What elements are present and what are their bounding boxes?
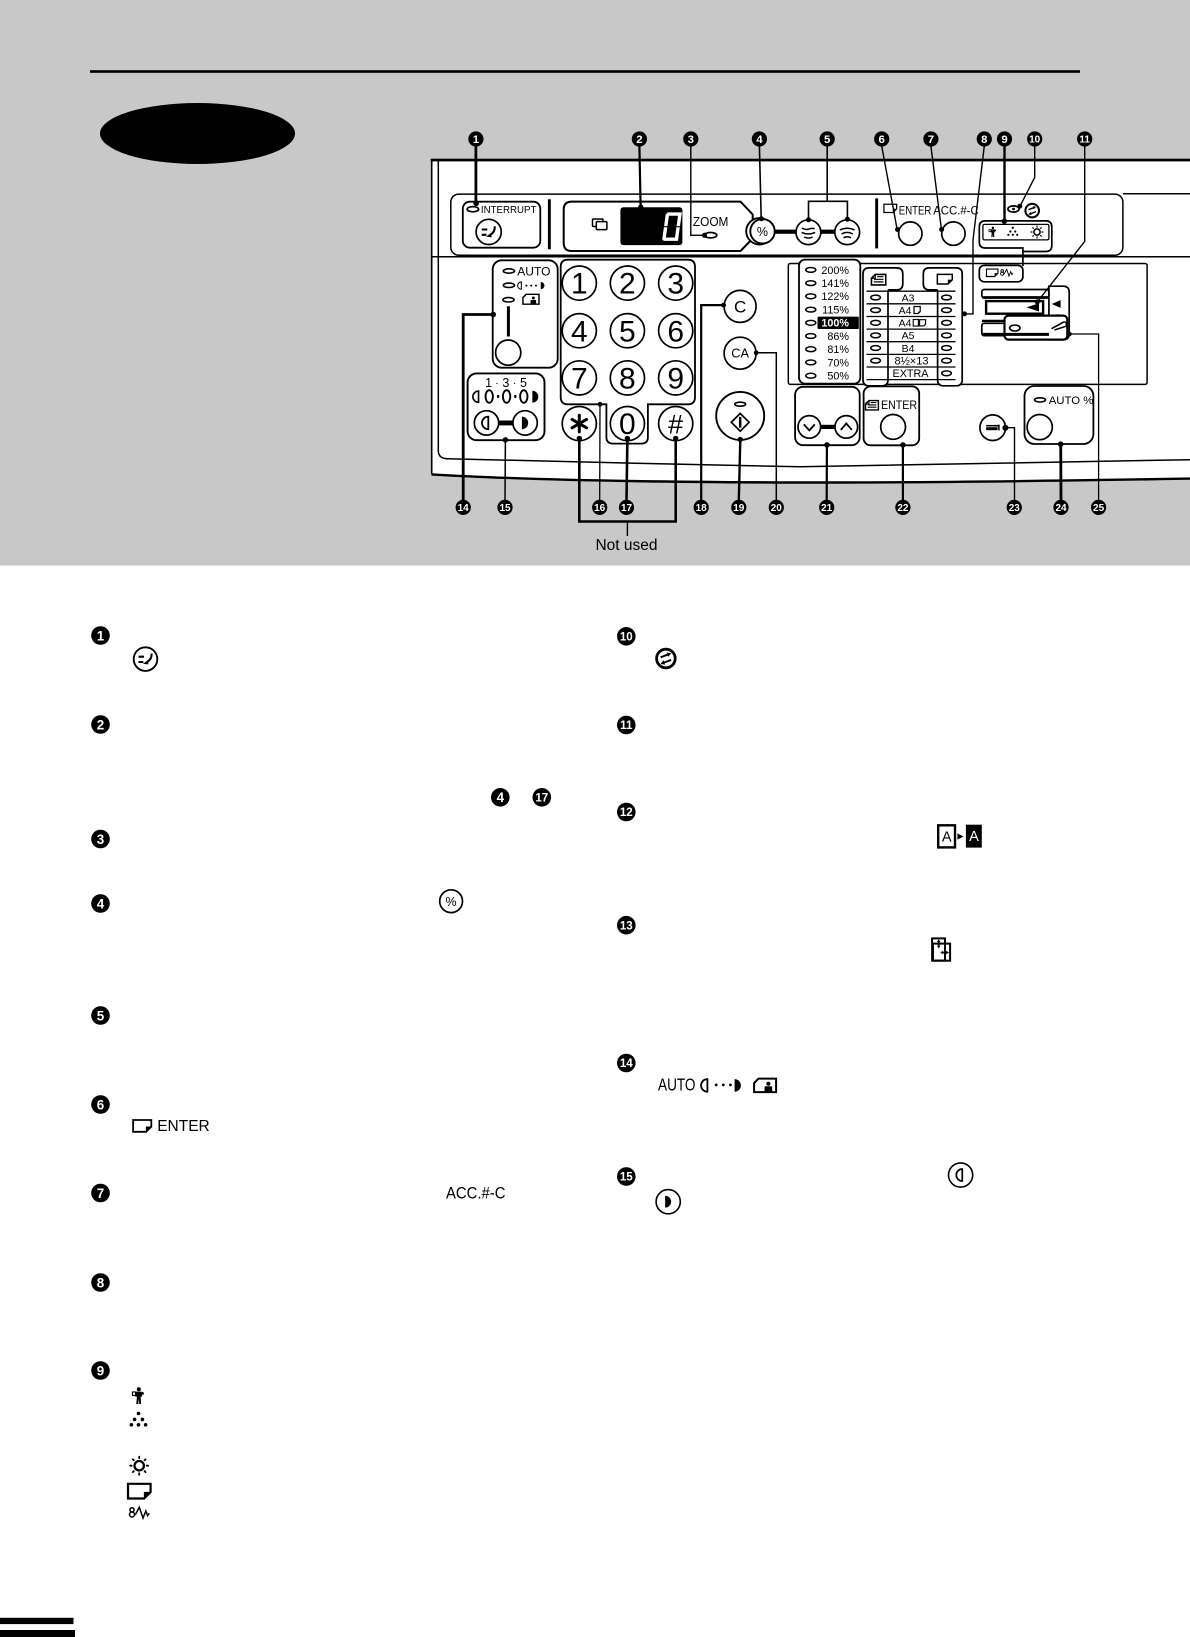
svg-text:200%: 200%	[821, 265, 849, 277]
svg-text:3: 3	[502, 376, 509, 390]
svg-text:A: A	[969, 829, 979, 845]
svg-text:%: %	[445, 895, 456, 909]
svg-text:1: 1	[97, 628, 105, 643]
svg-text:ENTER: ENTER	[899, 204, 932, 217]
svg-text:4: 4	[756, 134, 763, 146]
svg-text:5: 5	[520, 376, 527, 390]
svg-text:B4: B4	[902, 343, 915, 355]
svg-text:15: 15	[499, 503, 511, 514]
svg-text:A4: A4	[899, 305, 912, 317]
svg-text:9: 9	[1001, 134, 1007, 146]
svg-text:20: 20	[771, 503, 783, 514]
svg-text:1: 1	[485, 376, 492, 390]
svg-text:ENTER: ENTER	[881, 398, 917, 412]
svg-text:50%: 50%	[827, 371, 849, 383]
svg-text:AUTO: AUTO	[517, 264, 550, 278]
svg-text:7: 7	[97, 1186, 104, 1201]
svg-text:11: 11	[1079, 135, 1090, 146]
svg-text:25: 25	[1093, 503, 1105, 514]
svg-text:8½×13: 8½×13	[895, 356, 929, 368]
svg-text:5: 5	[97, 1008, 105, 1023]
svg-text:7: 7	[928, 134, 934, 146]
svg-text:15: 15	[620, 1171, 633, 1184]
svg-text:14: 14	[458, 503, 470, 514]
svg-text:10: 10	[620, 631, 633, 644]
svg-text:11: 11	[620, 719, 633, 732]
svg-text:3: 3	[667, 268, 684, 301]
svg-text:AUTO %: AUTO %	[1049, 395, 1094, 407]
svg-text:2: 2	[636, 134, 642, 146]
svg-text:17: 17	[535, 792, 548, 805]
svg-text:5: 5	[824, 134, 831, 146]
svg-text:122%: 122%	[821, 291, 849, 303]
svg-text:12: 12	[620, 806, 633, 819]
svg-text:115%: 115%	[822, 305, 849, 317]
svg-text:8: 8	[981, 134, 987, 146]
svg-text:18: 18	[696, 503, 708, 514]
svg-text:17: 17	[621, 503, 633, 514]
svg-text:81%: 81%	[827, 344, 849, 356]
svg-text:2: 2	[97, 717, 104, 732]
svg-text:·: ·	[495, 377, 499, 389]
svg-text:A3: A3	[902, 292, 915, 304]
svg-text:3: 3	[688, 134, 694, 146]
svg-text:8: 8	[619, 363, 636, 396]
svg-text:8: 8	[97, 1275, 105, 1290]
svg-text:13: 13	[620, 919, 633, 932]
svg-text:5: 5	[619, 315, 636, 348]
svg-text:A: A	[942, 830, 952, 846]
svg-text:6: 6	[97, 1097, 104, 1112]
svg-text:141%: 141%	[821, 278, 849, 290]
svg-text:A4: A4	[899, 318, 912, 330]
svg-text:INTERRUPT: INTERRUPT	[481, 205, 537, 216]
svg-text:%: %	[757, 225, 768, 239]
svg-text:86%: 86%	[827, 331, 849, 343]
svg-text:CA: CA	[731, 346, 749, 361]
svg-text:16: 16	[594, 503, 606, 514]
svg-text:4: 4	[97, 896, 105, 911]
svg-text:2: 2	[619, 268, 636, 301]
svg-text:70%: 70%	[827, 357, 849, 369]
svg-text:1: 1	[571, 268, 588, 301]
svg-text:Not used: Not used	[595, 537, 657, 554]
svg-text:6: 6	[667, 315, 684, 348]
svg-text:ACC.#-C: ACC.#-C	[446, 1183, 506, 1202]
svg-text:9: 9	[97, 1363, 104, 1378]
svg-text:ENTER: ENTER	[157, 1118, 210, 1135]
svg-text:9: 9	[667, 363, 684, 396]
svg-text:ZOOM: ZOOM	[693, 214, 729, 229]
svg-text:22: 22	[897, 503, 909, 514]
svg-text:24: 24	[1055, 503, 1067, 514]
svg-text:4: 4	[497, 790, 505, 805]
svg-text:7: 7	[571, 363, 588, 396]
svg-text:EXTRA: EXTRA	[893, 368, 930, 380]
svg-text:4: 4	[571, 315, 588, 348]
svg-text:6: 6	[879, 134, 885, 146]
svg-text:#: #	[668, 410, 683, 440]
svg-text:AUTO: AUTO	[658, 1075, 696, 1095]
svg-text:C: C	[734, 298, 746, 317]
svg-text:23: 23	[1009, 503, 1021, 514]
svg-text:A5: A5	[902, 330, 915, 342]
svg-text:19: 19	[733, 503, 745, 514]
svg-text:1: 1	[473, 134, 480, 146]
svg-text:14: 14	[620, 1057, 633, 1070]
svg-text:100%: 100%	[821, 318, 849, 330]
svg-text:10: 10	[1029, 135, 1041, 146]
svg-text:3: 3	[97, 832, 104, 847]
svg-text:21: 21	[821, 503, 833, 514]
svg-text:·: ·	[513, 377, 517, 389]
